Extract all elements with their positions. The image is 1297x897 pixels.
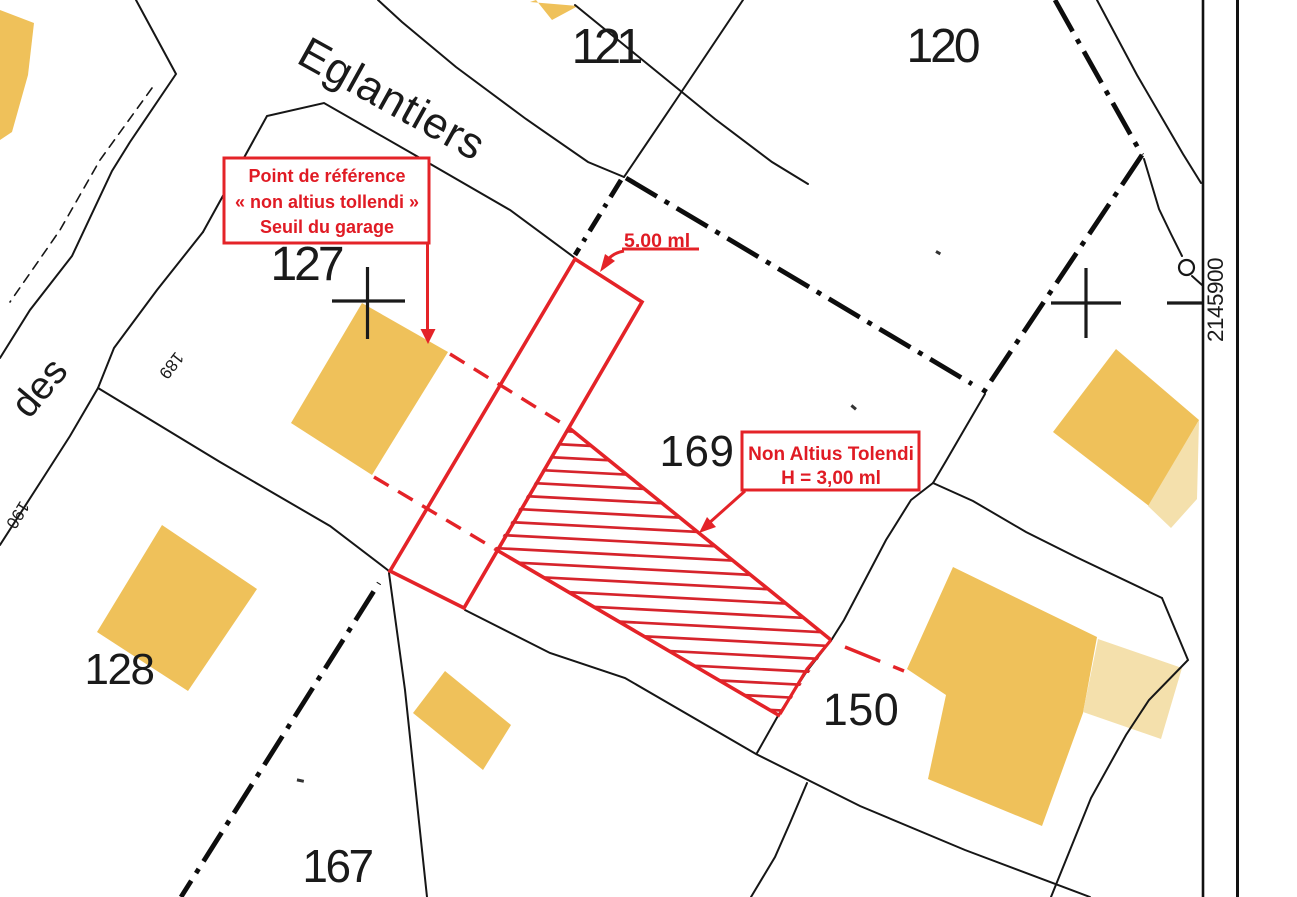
svg-text:121: 121 [572, 20, 642, 74]
svg-text:Non Altius Tolendi: Non Altius Tolendi [748, 444, 914, 465]
svg-text:Point de référence: Point de référence [248, 166, 405, 186]
svg-text:H = 3,00 ml: H = 3,00 ml [781, 468, 881, 489]
svg-text:128: 128 [85, 645, 154, 694]
svg-text:2145900: 2145900 [1203, 258, 1228, 342]
svg-text:169: 169 [660, 427, 735, 476]
svg-text:167: 167 [302, 840, 372, 892]
svg-text:127: 127 [270, 238, 342, 291]
svg-text:« non altius tollendi »: « non altius tollendi » [235, 192, 419, 212]
svg-text:Seuil du garage: Seuil du garage [260, 217, 394, 237]
svg-text:150: 150 [823, 684, 900, 735]
svg-text:120: 120 [906, 20, 978, 73]
